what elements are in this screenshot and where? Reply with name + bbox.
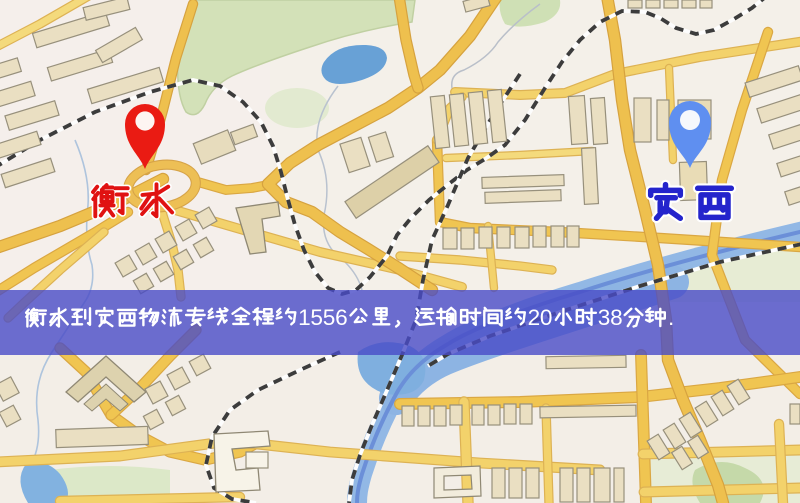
svg-text:2: 2	[528, 305, 541, 330]
svg-text:1: 1	[298, 305, 311, 330]
svg-text:5: 5	[323, 305, 336, 330]
svg-text:8: 8	[610, 305, 623, 330]
svg-text:3: 3	[598, 305, 611, 330]
svg-text:0: 0	[540, 305, 553, 330]
svg-text:.: .	[668, 305, 674, 330]
svg-text:5: 5	[310, 305, 323, 330]
svg-text:6: 6	[335, 305, 348, 330]
